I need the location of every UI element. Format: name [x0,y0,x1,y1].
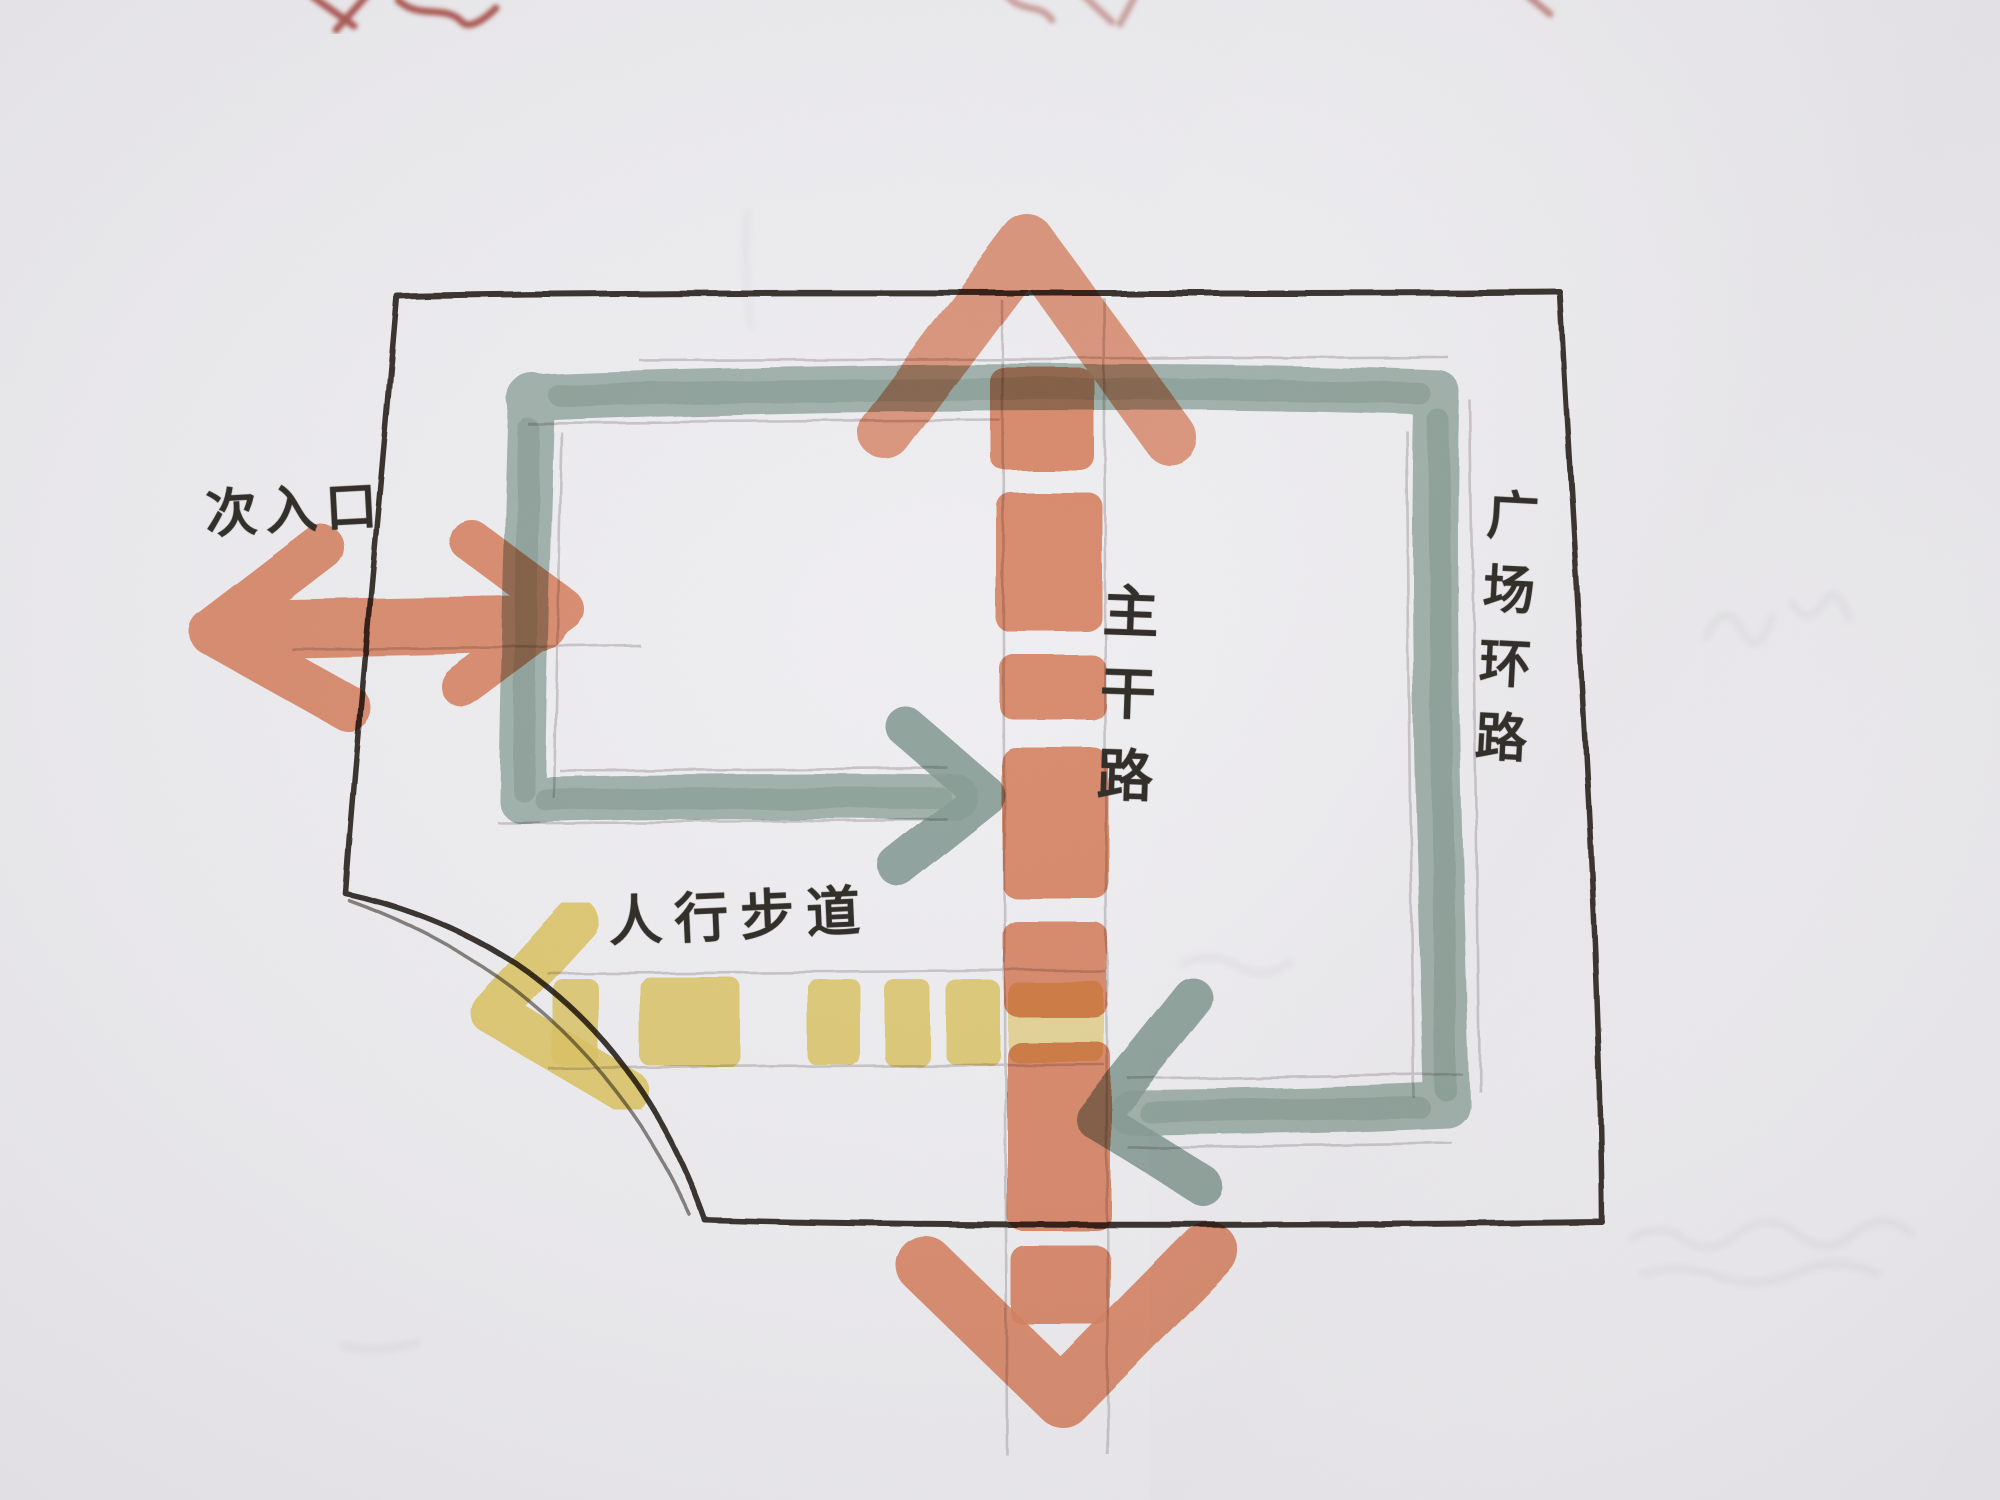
road-dash [1004,922,1108,1017]
road-dash [1010,1245,1110,1325]
crosswalk-dash [808,978,860,1066]
label-secondary-entrance: 次入口 [203,463,387,547]
label-main-road: 主干路 [1078,581,1168,830]
crosswalk-dash [946,980,1000,1065]
crosswalk-dash [640,977,740,1066]
label-plaza-ring-road: 广场环路 [1456,486,1546,786]
site-plan-drawing [0,0,2000,1500]
entrance-arrow-shaft [242,624,540,630]
paper-grain [0,0,2000,1500]
road-dash [990,368,1094,470]
crosswalk-dash [884,979,930,1066]
label-pedestrian-walkway: 人行步道 [606,866,873,956]
road-dash [1007,1042,1111,1230]
sketch-page: 次入口 人行步道 主干路 广场环路 [0,0,2000,1500]
